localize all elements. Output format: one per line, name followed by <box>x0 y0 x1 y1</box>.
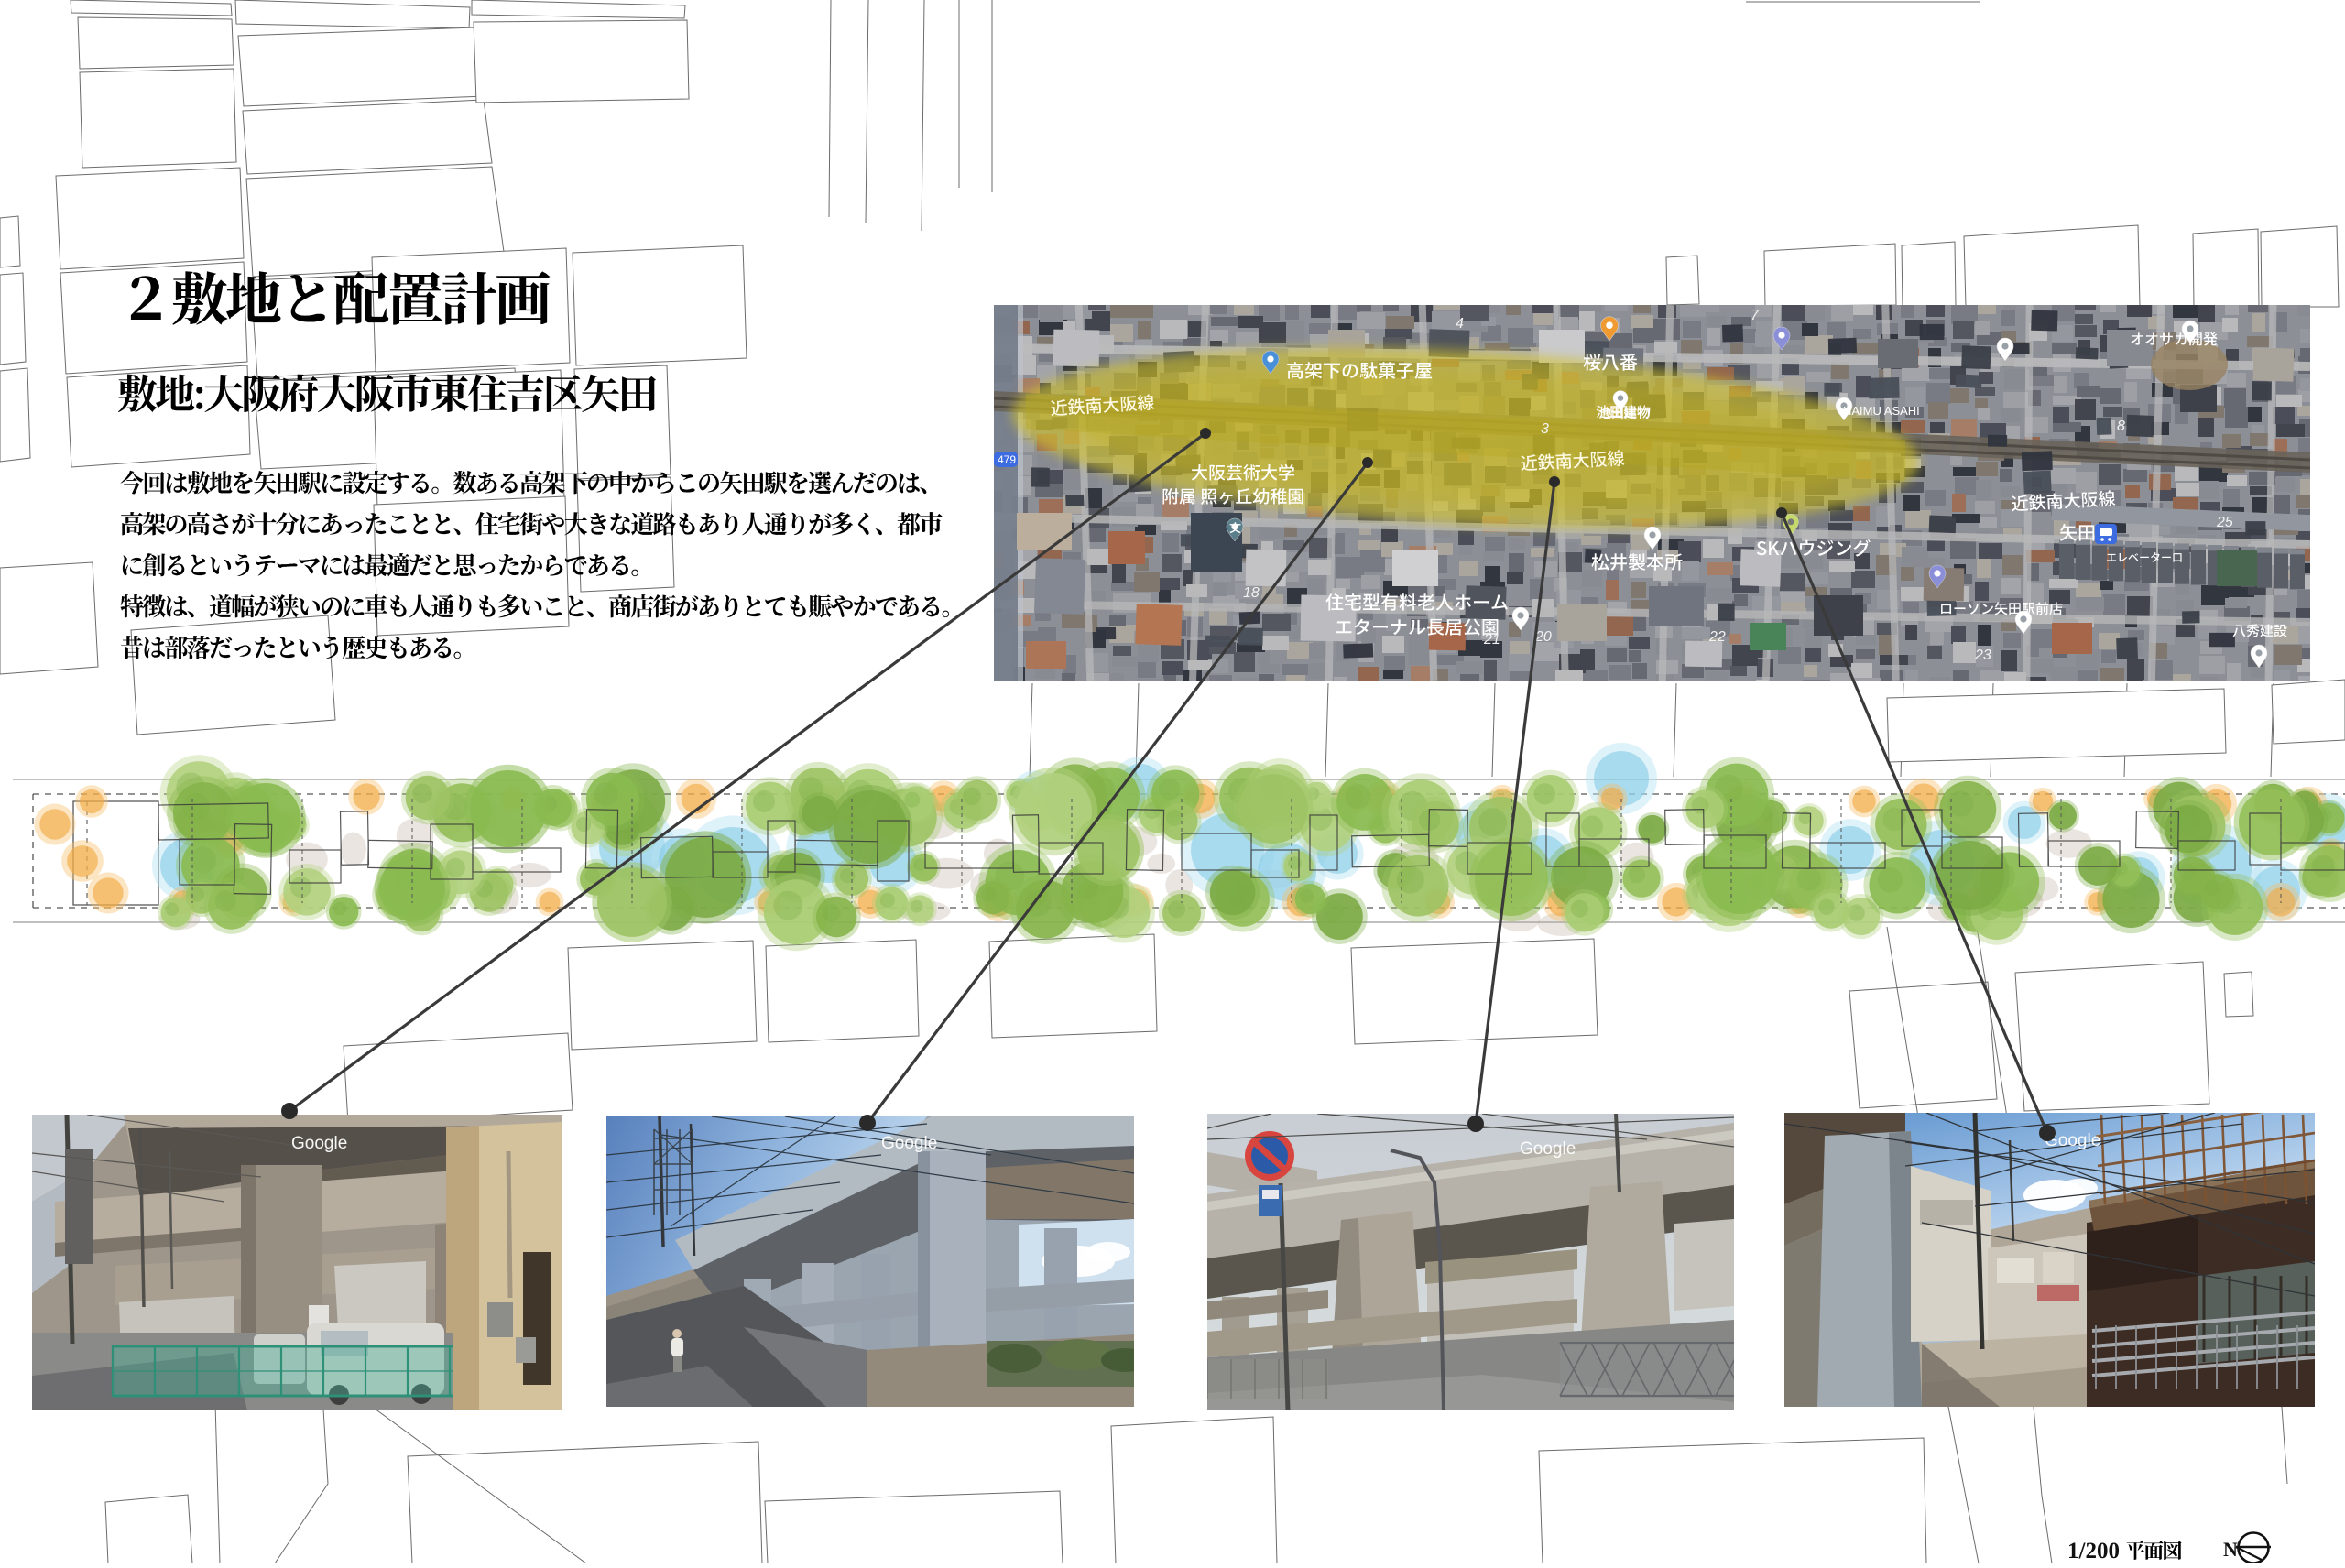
svg-text:479: 479 <box>998 453 1016 466</box>
svg-text:Google: Google <box>1520 1139 1576 1159</box>
svg-text:8: 8 <box>2117 419 2125 434</box>
svg-text:1/200: 1/200 <box>2067 1539 2120 1563</box>
svg-text:18: 18 <box>1243 585 1260 601</box>
svg-text:7: 7 <box>1751 308 1760 323</box>
svg-text:4: 4 <box>1456 316 1464 332</box>
svg-text:23: 23 <box>1974 648 1991 663</box>
svg-text:22: 22 <box>1708 629 1726 645</box>
svg-text:N: N <box>2223 1538 2238 1561</box>
svg-text:Google: Google <box>881 1134 937 1153</box>
svg-text:21: 21 <box>1483 632 1500 648</box>
svg-text:HAIMU ASAHI: HAIMU ASAHI <box>1843 404 1920 418</box>
svg-text:25: 25 <box>2216 515 2233 530</box>
svg-text:Google: Google <box>291 1134 347 1153</box>
svg-text:3: 3 <box>1541 421 1549 437</box>
